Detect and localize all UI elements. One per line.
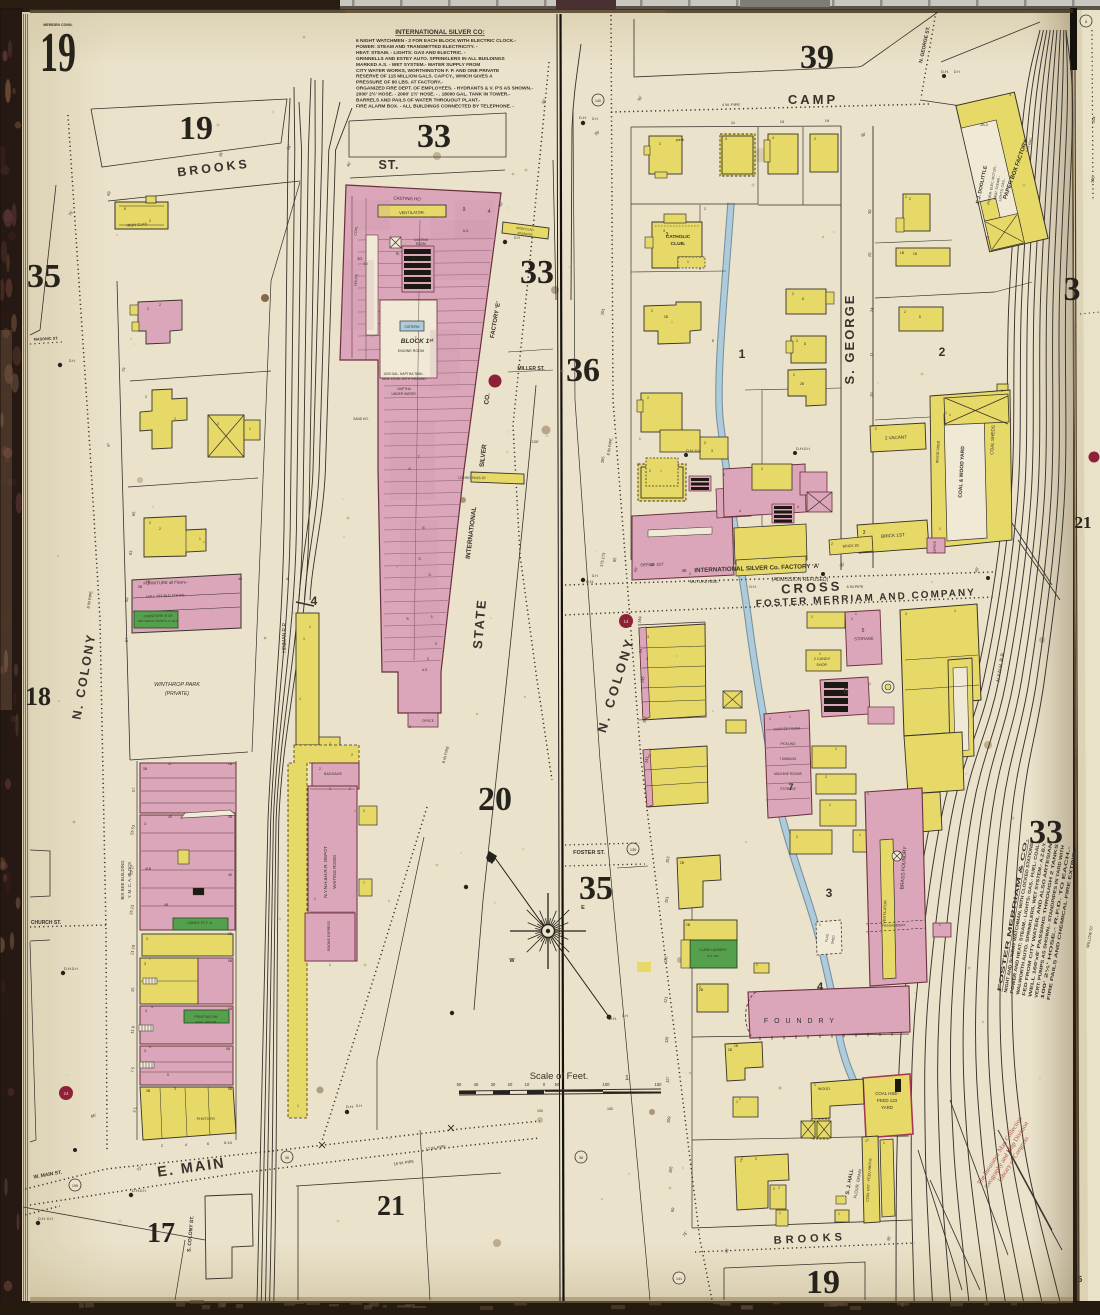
svg-text:45: 45 (228, 873, 232, 877)
svg-text:CO.: CO. (483, 392, 491, 405)
svg-text:D.H.: D.H. (695, 449, 701, 453)
svg-text:2: 2 (351, 753, 353, 757)
svg-text:D.H.: D.H. (796, 446, 804, 451)
svg-text:D.H.: D.H. (579, 115, 587, 120)
svg-text:3: 3 (145, 1009, 147, 1013)
svg-text:3: 3 (663, 229, 665, 233)
svg-text:39: 39 (800, 39, 834, 76)
svg-text:33: 33 (417, 118, 451, 155)
svg-text:3: 3 (144, 1049, 146, 1053)
svg-text:8 10: 8 10 (224, 1140, 233, 1145)
svg-text:D.H.: D.H. (592, 117, 598, 121)
svg-text:CATHOLIC: CATHOLIC (666, 234, 691, 240)
svg-text:8.: 8. (396, 251, 400, 256)
svg-text:5: 5 (167, 1073, 169, 1077)
svg-text:D.H.: D.H. (514, 236, 520, 240)
svg-text:4: 4 (797, 505, 799, 509)
svg-text:50: 50 (457, 1082, 462, 1087)
svg-text:2: 2 (875, 427, 877, 431)
svg-text:F O U N D R Y: F O U N D R Y (764, 1018, 836, 1025)
svg-text:21: 21 (1075, 513, 1092, 532)
svg-text:S. GEORGE: S. GEORGE (842, 294, 857, 385)
svg-text:D.H.: D.H. (804, 447, 810, 451)
svg-text:3: 3 (144, 962, 146, 966)
svg-text:3.: 3. (428, 572, 431, 577)
svg-text:1B: 1B (913, 252, 918, 256)
svg-text:2B-3: 2B-3 (980, 123, 988, 127)
svg-text:CISTERN: CISTERN (405, 325, 420, 329)
svg-text:MILLER ST.: MILLER ST. (517, 366, 545, 372)
svg-text:9: 9 (463, 207, 466, 213)
svg-text:3: 3 (725, 137, 727, 141)
svg-text:STORAGE: STORAGE (854, 636, 874, 642)
svg-text:2: 2 (792, 292, 794, 296)
svg-text:8: 8 (124, 207, 126, 211)
svg-text:TUMBLING: TUMBLING (780, 757, 797, 761)
svg-text:D.H.: D.H. (586, 579, 594, 584)
svg-text:130': 130' (531, 439, 539, 444)
svg-text:D.H.: D.H. (356, 1104, 362, 1108)
svg-text:FEED 123: FEED 123 (877, 1098, 898, 1103)
svg-text:INTERNATIONAL SILVER CO:: INTERNATIONAL SILVER CO: (395, 29, 484, 36)
svg-text:2: 2 (796, 835, 798, 839)
svg-text:D.H.: D.H. (140, 1189, 146, 1193)
svg-text:3: 3 (905, 612, 907, 616)
svg-text:140: 140 (595, 99, 601, 103)
svg-text:8: 8 (1085, 20, 1087, 24)
svg-text:19: 19 (825, 118, 830, 123)
svg-text:D.H.: D.H. (941, 69, 949, 74)
svg-text:A.S.: A.S. (422, 668, 428, 672)
svg-text:RESERVE OF 115 MILLION GALS. C: RESERVE OF 115 MILLION GALS. CAP'CY., WH… (356, 74, 493, 80)
svg-text:ORGANIZED FIRE DEPT. OF EMPLO: ORGANIZED FIRE DEPT. OF EMPLOYEES. - HYD… (356, 86, 533, 92)
svg-text:36: 36 (566, 352, 600, 389)
svg-text:1000 GAL. NAPTHA TANK.-: 1000 GAL. NAPTHA TANK.- (383, 372, 424, 376)
svg-text:1: 1 (739, 347, 746, 361)
svg-text:1: 1 (814, 1083, 816, 1087)
svg-text:3B: 3B (146, 1089, 151, 1093)
svg-text:D.H.: D.H. (72, 967, 78, 971)
svg-text:2: 2 (699, 985, 701, 989)
svg-text:19: 19 (179, 110, 213, 147)
svg-text:D.H.: D.H. (686, 448, 694, 453)
svg-text:ST.: ST. (378, 158, 399, 172)
svg-text:4: 4 (488, 209, 491, 215)
svg-text:3: 3 (711, 449, 713, 453)
svg-text:2B: 2B (800, 382, 805, 386)
svg-text:ROOMS EXPRESS: ROOMS EXPRESS (327, 920, 331, 951)
svg-text:3: 3 (151, 1005, 153, 1009)
svg-text:COAL: COAL (354, 226, 359, 236)
svg-text:(ADMISSION REFUSED): (ADMISSION REFUSED) (772, 577, 829, 583)
svg-text:3: 3 (648, 754, 650, 758)
svg-text:CLUB.: CLUB. (671, 241, 686, 247)
svg-text:PHOTO RY: PHOTO RY (197, 1117, 216, 1121)
svg-text:2: 2 (723, 473, 725, 477)
svg-text:UNDER WATER.: UNDER WATER. (391, 392, 416, 396)
svg-text:2: 2 (939, 345, 946, 359)
svg-text:6.: 6. (409, 467, 412, 471)
svg-text:ROOM: ROOM (416, 242, 426, 246)
svg-text:CLARK LAUNDRY: CLARK LAUNDRY (699, 948, 727, 952)
svg-text:1: 1 (299, 697, 301, 701)
svg-text:POWER: STEAM AND TRANSMITTED: POWER: STEAM AND TRANSMITTED ELECTRICITY… (356, 44, 478, 50)
svg-text:WAITING ROOM: WAITING ROOM (332, 855, 337, 889)
svg-text:1: 1 (769, 717, 771, 721)
svg-text:2: 2 (159, 303, 161, 307)
svg-text:2: 2 (741, 1157, 743, 1161)
svg-text:D.H.: D.H. (609, 1016, 617, 1021)
svg-text:1: 1 (939, 527, 941, 531)
svg-text:2: 2 (149, 521, 151, 525)
svg-text:1: 1 (199, 537, 201, 541)
svg-text:2: 2 (651, 309, 653, 313)
svg-text:OFFICE: OFFICE (422, 719, 434, 723)
svg-text:3: 3 (863, 530, 866, 536)
svg-text:10: 10 (525, 1082, 530, 1087)
svg-text:18: 18 (25, 682, 51, 711)
svg-text:1: 1 (1001, 389, 1003, 393)
svg-text:50: 50 (555, 1082, 560, 1087)
svg-text:30: 30 (491, 1082, 496, 1087)
svg-text:2: 2 (814, 137, 816, 141)
svg-text:D.H.: D.H. (47, 1217, 53, 1221)
svg-text:1: 1 (303, 637, 305, 641)
svg-text:OFFICE: OFFICE (933, 541, 937, 553)
svg-text:5B: 5B (228, 959, 233, 963)
svg-text:W: W (509, 958, 515, 964)
svg-text:5B: 5B (226, 1047, 231, 1051)
svg-text:PICKLING: PICKLING (781, 742, 796, 746)
svg-text:1: 1 (811, 615, 813, 619)
svg-text:CASTING HO: CASTING HO (393, 196, 421, 202)
svg-text:BAGGAGE: BAGGAGE (324, 772, 343, 776)
svg-text:1: 1 (789, 715, 791, 719)
svg-text:1: 1 (867, 792, 869, 796)
svg-text:D.H.: D.H. (622, 1014, 628, 1018)
svg-text:2: 2 (145, 395, 147, 399)
svg-text:7: 7 (363, 881, 365, 885)
svg-text:3: 3 (666, 232, 669, 238)
svg-text:1: 1 (835, 747, 837, 751)
svg-text:6 IN PIPE: 6 IN PIPE (847, 585, 864, 589)
svg-text:1: 1 (869, 682, 871, 686)
svg-text:3: 3 (1064, 271, 1081, 308)
svg-text:3: 3 (826, 886, 833, 900)
svg-text:3B: 3B (143, 767, 148, 771)
svg-text:1: 1 (851, 617, 853, 621)
svg-text:24: 24 (63, 1091, 69, 1096)
svg-text:CAMP: CAMP (788, 92, 838, 107)
svg-text:1: 1 (687, 260, 689, 264)
svg-text:19: 19 (40, 22, 76, 84)
svg-text:57: 57 (168, 762, 172, 766)
svg-text:2: 2 (778, 1186, 780, 1190)
svg-text:D.H.: D.H. (69, 359, 75, 363)
svg-text:3.: 3. (431, 615, 434, 619)
svg-text:20: 20 (478, 781, 512, 818)
svg-text:3: 3 (647, 635, 649, 639)
svg-text:2: 2 (909, 197, 911, 201)
svg-text:1B: 1B (900, 251, 905, 255)
svg-text:2: 2 (704, 207, 706, 211)
svg-text:CITY WATER WORKS, WORTHINGTON: CITY WATER WORKS, WORTHINGTON F. P. AND … (356, 68, 500, 74)
svg-text:2: 2 (427, 657, 429, 661)
svg-text:195: 195 (72, 1184, 78, 1188)
svg-text:2: 2 (147, 307, 149, 311)
svg-text:10.: 10. (357, 256, 363, 261)
svg-text:2000' 2½' HOSE. - 2000' 1½': 2000' 2½' HOSE. - 2000' 1½' HOSE. - . 18… (356, 91, 511, 98)
svg-text:4: 4 (772, 136, 774, 140)
svg-text:33: 33 (520, 254, 554, 291)
svg-text:9B: 9B (228, 1007, 233, 1011)
svg-text:2B: 2B (686, 923, 691, 927)
svg-text:D.H.: D.H. (38, 1216, 46, 1221)
svg-text:19: 19 (806, 1264, 840, 1301)
svg-text:1: 1 (819, 652, 821, 656)
svg-text:CHURCH ST.: CHURCH ST. (31, 920, 62, 926)
svg-text:2: 2 (755, 1157, 757, 1161)
svg-text:Scale of Feet.: Scale of Feet. (530, 1071, 589, 1082)
svg-text:1: 1 (756, 963, 758, 967)
svg-text:2B: 2B (680, 861, 685, 865)
svg-text:3: 3 (646, 657, 648, 661)
svg-text:1B: 1B (228, 762, 233, 766)
svg-text:20: 20 (508, 1082, 513, 1087)
svg-text:1: 1 (297, 1104, 299, 1108)
svg-text:BARRELS AND PAILS OF WATER THR: BARRELS AND PAILS OF WATER THROUOUT PLAN… (356, 98, 481, 104)
svg-text:WOOD: WOOD (818, 1087, 830, 1091)
svg-text:1: 1 (939, 923, 941, 927)
svg-text:1: 1 (736, 1100, 738, 1104)
svg-text:2: 2 (904, 310, 906, 314)
svg-text:2: 2 (831, 542, 833, 546)
svg-text:1: 1 (867, 1138, 869, 1142)
svg-text:48: 48 (650, 563, 654, 567)
svg-text:FOSTER ST.: FOSTER ST. (573, 850, 605, 856)
svg-text:B & 1ST: B & 1ST (707, 954, 718, 958)
svg-text:5B: 5B (228, 1087, 233, 1091)
svg-text:2B: 2B (734, 1044, 739, 1048)
svg-text:porch: porch (676, 138, 685, 142)
svg-text:2: 2 (796, 339, 798, 343)
svg-text:40: 40 (238, 577, 242, 581)
svg-text:1: 1 (249, 427, 251, 431)
svg-text:MUTUAL RISK.-: MUTUAL RISK.- (690, 579, 721, 584)
svg-text:1: 1 (819, 923, 821, 927)
svg-text:4: 4 (739, 509, 741, 513)
svg-text:5: 5 (1078, 1275, 1083, 1284)
svg-text:1: 1 (838, 1212, 840, 1216)
svg-text:FIRE ALARM BOX. - ALL BUILDING: FIRE ALARM BOX. - ALL BUILDINGS CONNECTE… (356, 103, 514, 109)
svg-text:100: 100 (603, 1082, 611, 1087)
svg-text:3: 3 (146, 937, 148, 941)
svg-text:141: 141 (676, 1277, 682, 1281)
svg-text:5.: 5. (419, 557, 422, 561)
svg-text:17: 17 (147, 1218, 175, 1249)
svg-text:10.: 10. (364, 262, 369, 266)
svg-text:2: 2 (905, 195, 907, 199)
svg-text:2: 2 (689, 572, 691, 576)
svg-text:7.: 7. (415, 336, 418, 340)
svg-text:D.H.: D.H. (749, 585, 756, 589)
svg-text:1: 1 (739, 1097, 741, 1101)
svg-text:D.H.: D.H. (64, 966, 72, 971)
svg-text:2: 2 (349, 787, 351, 791)
svg-text:41B: 41B (145, 867, 152, 871)
svg-text:SHOP.: SHOP. (816, 663, 827, 667)
svg-text:(PRIVATE): (PRIVATE) (165, 691, 189, 697)
svg-text:A.S.: A.S. (463, 229, 469, 233)
svg-text:BIX BEE BUILDING: BIX BEE BUILDING (120, 860, 125, 900)
svg-text:35: 35 (27, 258, 61, 295)
svg-text:SAND HO.: SAND HO. (353, 417, 369, 421)
svg-text:100: 100 (537, 1109, 543, 1113)
svg-text:ENGINE ROOM: ENGINE ROOM (398, 349, 424, 353)
svg-text:2B: 2B (664, 315, 669, 319)
svg-text:1: 1 (309, 625, 311, 629)
svg-text:1: 1 (954, 609, 956, 613)
svg-text:8.: 8. (413, 257, 416, 261)
svg-text:4B: 4B (228, 815, 233, 819)
svg-text:150: 150 (607, 1107, 613, 1111)
svg-text:YARD: YARD (881, 1105, 893, 1110)
svg-text:HINMAN R.R.: HINMAN R.R. (282, 621, 288, 652)
svg-text:6.: 6. (422, 525, 425, 530)
svg-text:7: 7 (149, 957, 151, 961)
svg-text:2: 2 (825, 775, 827, 779)
svg-text:PRESSURE OF 80 LBS. AT FACTORY: PRESSURE OF 80 LBS. AT FACTORY.- (356, 80, 443, 86)
svg-text:3: 3 (149, 1045, 151, 1049)
svg-text:1: 1 (329, 963, 331, 967)
svg-text:1: 1 (639, 437, 641, 441)
svg-text:2: 2 (319, 767, 321, 771)
svg-text:MID-DEPOT, PAINTS, & OILS: MID-DEPOT, PAINTS, & OILS (138, 619, 178, 623)
svg-text:40: 40 (474, 1082, 479, 1087)
svg-text:ELEC. MOTOR: ELEC. MOTOR (196, 1020, 217, 1024)
svg-text:PASSAGEWAY: PASSAGEWAY (882, 923, 906, 928)
svg-text:COAL HSE-: COAL HSE- (875, 1091, 899, 1096)
svg-text:49: 49 (168, 815, 172, 819)
svg-text:36: 36 (579, 1156, 583, 1160)
svg-text:GRINNELLS AND ESTEY AUTO. SPR: GRINNELLS AND ESTEY AUTO. SPRINKLERS IN … (356, 56, 506, 62)
svg-text:7.: 7. (417, 454, 420, 459)
svg-text:2: 2 (793, 373, 795, 377)
svg-text:1: 1 (329, 787, 331, 791)
svg-text:3B: 3B (146, 580, 151, 584)
svg-text:2: 2 (329, 742, 331, 746)
svg-text:2: 2 (773, 1187, 775, 1191)
svg-text:3: 3 (144, 822, 146, 826)
svg-text:48: 48 (681, 568, 687, 573)
svg-text:HEAT: STEAM. - LIGHTS: GAS A: HEAT: STEAM. - LIGHTS: GAS AND ELECTRIC.… (356, 50, 466, 56)
svg-text:4: 4 (817, 981, 824, 993)
svg-text:2: 2 (659, 142, 661, 146)
svg-text:VENTILATOR.: VENTILATOR. (399, 210, 425, 215)
svg-text:1: 1 (314, 897, 316, 901)
svg-text:D.H.: D.H. (346, 1104, 354, 1109)
svg-text:2: 2 (647, 396, 649, 400)
svg-text:1: 1 (883, 1141, 885, 1145)
svg-text:PRINTING RM: PRINTING RM (194, 1015, 217, 1019)
svg-text:MACHINE ROOMS: MACHINE ROOMS (774, 772, 802, 776)
svg-text:D.H.: D.H. (592, 574, 598, 578)
svg-text:35: 35 (579, 870, 613, 907)
svg-text:3: 3 (174, 1087, 176, 1091)
svg-text:STORAGE: STORAGE (780, 787, 796, 791)
svg-text:LOVING PASS ST: LOVING PASS ST (458, 476, 486, 480)
svg-text:5: 5 (862, 628, 865, 634)
svg-text:5.: 5. (406, 616, 409, 621)
svg-text:TANK LEVEL WITH GROUND.: TANK LEVEL WITH GROUND. (381, 377, 427, 381)
svg-text:1: 1 (977, 202, 979, 206)
svg-text:21: 21 (377, 1191, 405, 1222)
svg-text:2: 2 (363, 809, 365, 813)
svg-text:4B: 4B (164, 903, 169, 907)
svg-text:N.Y.N.H.&H.R.R. DEPOT: N.Y.N.H.&H.R.R. DEPOT (323, 846, 328, 898)
svg-text:NAPTHA: NAPTHA (397, 387, 411, 391)
svg-text:36: 36 (285, 1156, 289, 1160)
svg-text:4: 4 (311, 594, 318, 608)
svg-text:1: 1 (949, 413, 951, 417)
svg-text:2: 2 (409, 725, 411, 729)
svg-text:WINTHROP PARK: WINTHROP PARK (154, 682, 200, 688)
svg-text:MERIDEN CONN.: MERIDEN CONN. (43, 23, 72, 27)
svg-text:D.H.: D.H. (954, 70, 960, 74)
svg-text:2 CANDY: 2 CANDY (814, 657, 831, 661)
svg-text:6 NIGHT WATCHMEN - 2 FOR EACH: 6 NIGHT WATCHMEN - 2 FOR EACH BLOCK WITH… (356, 38, 516, 44)
svg-text:2: 2 (649, 469, 651, 473)
svg-text:2B: 2B (728, 1048, 733, 1052)
svg-text:2: 2 (149, 219, 151, 223)
svg-text:150: 150 (655, 1082, 663, 1087)
svg-text:4 W. PIPE: 4 W. PIPE (722, 102, 741, 107)
svg-text:D.H.: D.H. (132, 1188, 140, 1193)
svg-text:2: 2 (761, 467, 763, 471)
svg-text:2: 2 (174, 417, 176, 421)
svg-text:1: 1 (945, 411, 947, 415)
svg-text:1: 1 (855, 612, 857, 616)
svg-text:6: 6 (843, 686, 848, 696)
svg-text:CANDY FCY. A.: CANDY FCY. A. (187, 921, 212, 925)
svg-text:2: 2 (159, 527, 161, 531)
svg-text:3B: 3B (228, 932, 233, 936)
svg-text:15: 15 (780, 119, 785, 124)
svg-text:1: 1 (625, 1075, 629, 1082)
svg-text:1: 1 (829, 803, 831, 807)
svg-text:3B: 3B (138, 585, 143, 589)
svg-text:1: 1 (859, 833, 861, 837)
svg-text:MARKED A.S. - WET SYSTEM.- WA: MARKED A.S. - WET SYSTEM.- WATER SUPPLY … (356, 62, 480, 68)
svg-text:3: 3 (1009, 93, 1011, 97)
svg-text:139: 139 (630, 848, 636, 852)
svg-text:1: 1 (779, 1211, 781, 1215)
svg-text:2: 2 (704, 441, 706, 445)
